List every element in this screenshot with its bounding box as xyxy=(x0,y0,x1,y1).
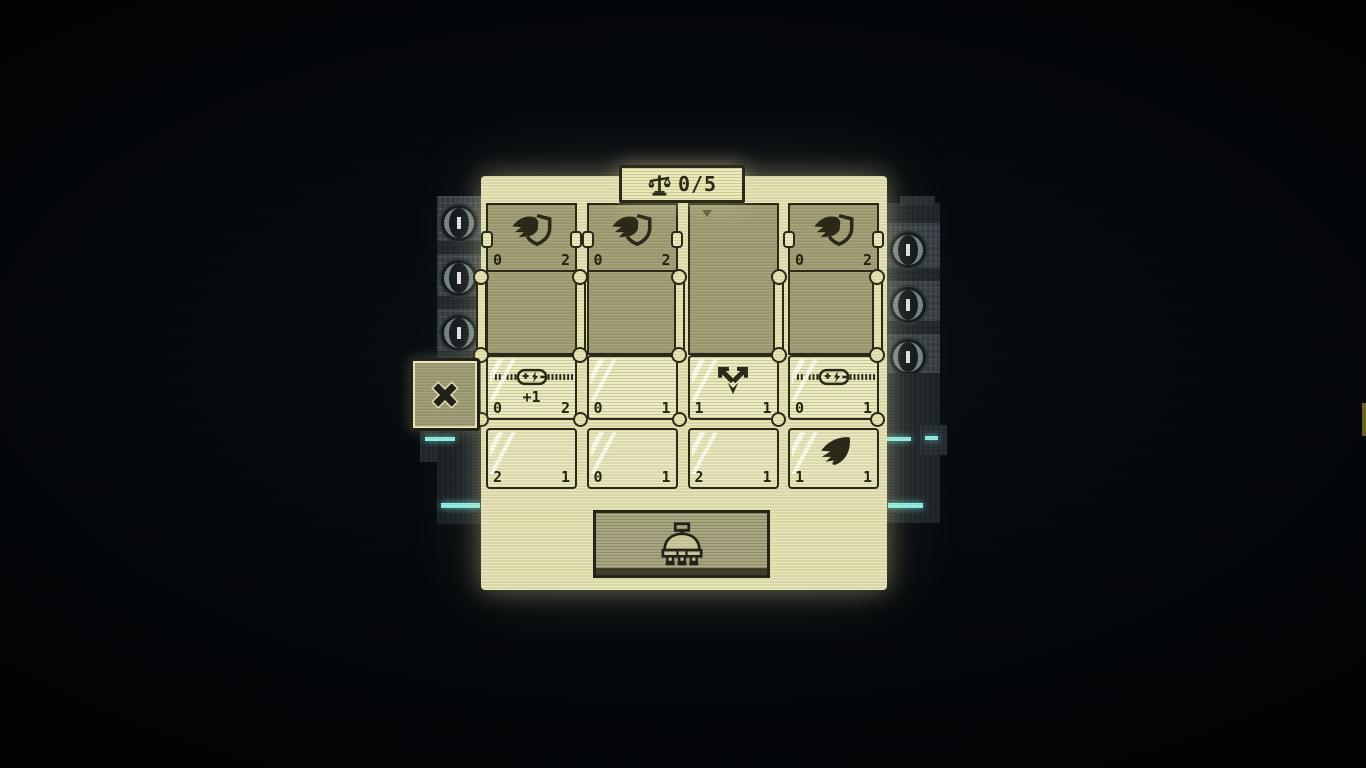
machine-block xyxy=(900,196,935,206)
card-value-right: 2 xyxy=(561,401,570,416)
connector-tab xyxy=(582,231,594,248)
card-value-right: 1 xyxy=(661,470,670,485)
card-column-4: 0 2 0 1 1 1 xyxy=(788,176,879,590)
connector-knob xyxy=(573,412,588,427)
connector-tab xyxy=(570,231,582,248)
card-value-left: 2 xyxy=(695,470,704,485)
connector-tab xyxy=(671,231,683,248)
card-socket: 0 2 xyxy=(788,203,879,355)
machine-block xyxy=(920,425,947,455)
robot-dome-icon xyxy=(656,522,708,567)
machine-column-right xyxy=(887,203,940,373)
screen-edge-glint xyxy=(1362,403,1366,436)
x-icon xyxy=(426,376,464,414)
divider-bone xyxy=(674,275,685,357)
connector-knob xyxy=(672,412,687,427)
machine-band xyxy=(887,321,940,334)
card-value-left: 1 xyxy=(695,401,704,416)
card-value-left: 1 xyxy=(795,470,804,485)
divider-bone xyxy=(872,275,883,357)
card-value-right: 1 xyxy=(863,401,872,416)
top-card[interactable]: 0 2 xyxy=(587,203,678,272)
glow-light xyxy=(888,503,923,508)
close-button[interactable] xyxy=(410,358,480,431)
card-value-left: 2 xyxy=(493,470,502,485)
glow-light xyxy=(425,437,455,441)
bottom-card[interactable]: 1 1 xyxy=(788,428,879,489)
divider-bone xyxy=(773,275,784,357)
bottom-card[interactable]: 0 1 xyxy=(587,428,678,489)
top-card[interactable]: 0 2 xyxy=(486,203,577,272)
empty-slot-marker xyxy=(702,210,712,217)
card-value-right: 1 xyxy=(661,401,670,416)
power-slider-icon xyxy=(491,367,573,387)
card-socket: 0 2 xyxy=(486,203,577,355)
winged-shield-icon xyxy=(811,210,857,248)
card-value-left: 0 xyxy=(795,401,804,416)
mid-card[interactable]: 1 1 xyxy=(688,355,779,420)
card-value-right: 1 xyxy=(863,470,872,485)
connector-knob xyxy=(870,412,885,427)
card-value-right: 2 xyxy=(561,253,570,268)
split-arrows-icon xyxy=(714,364,752,397)
machine-band xyxy=(887,268,940,281)
vent-fan-icon xyxy=(441,260,477,296)
mid-card[interactable]: 0 1 xyxy=(788,355,879,420)
card-column-1: 0 2 +1 0 2 2 1 xyxy=(486,176,577,590)
vent-fan-icon xyxy=(441,205,477,241)
balance-counter-badge: 0/5 xyxy=(619,165,745,203)
mid-card[interactable]: 0 1 xyxy=(587,355,678,420)
scales-icon xyxy=(647,173,671,196)
card-value-left: 0 xyxy=(493,253,502,268)
card-value-left: 0 xyxy=(594,470,603,485)
counter-value: 0/5 xyxy=(678,172,717,196)
divider-bone xyxy=(476,275,487,357)
vent-fan-icon xyxy=(890,339,926,375)
vent-fan-icon xyxy=(890,287,926,323)
wing-icon xyxy=(814,435,854,469)
divider-bone xyxy=(575,275,586,357)
card-value-left: 0 xyxy=(795,253,804,268)
card-value-right: 1 xyxy=(762,470,771,485)
card-value-left: 0 xyxy=(594,253,603,268)
vent-fan-icon xyxy=(890,232,926,268)
power-slider-icon xyxy=(793,367,875,387)
bottom-card[interactable]: 2 1 xyxy=(688,428,779,489)
empty-card-socket[interactable] xyxy=(688,203,779,355)
winged-shield-icon xyxy=(609,210,655,248)
card-socket: 0 2 xyxy=(587,203,678,355)
winged-shield-icon xyxy=(509,210,555,248)
card-value-left: 0 xyxy=(594,401,603,416)
connector-knob xyxy=(771,412,786,427)
glow-light xyxy=(441,503,480,508)
upgrade-panel: 0 2 +1 0 2 2 1 0 2 xyxy=(481,176,887,590)
bottom-card[interactable]: 2 1 xyxy=(486,428,577,489)
glow-light xyxy=(925,436,938,440)
top-card[interactable]: 0 2 xyxy=(788,203,879,272)
mid-card[interactable]: +1 0 2 xyxy=(486,355,577,420)
machine-band xyxy=(887,203,940,223)
card-value-right: 2 xyxy=(863,253,872,268)
vent-fan-icon xyxy=(441,315,477,351)
connector-tab xyxy=(872,231,884,248)
robot-dock[interactable] xyxy=(593,510,770,578)
connector-tab xyxy=(783,231,795,248)
card-value-left: 0 xyxy=(493,401,502,416)
machine-band xyxy=(437,241,482,254)
card-value-right: 2 xyxy=(661,253,670,268)
connector-tab xyxy=(481,231,493,248)
glow-light xyxy=(886,437,911,441)
card-value-right: 1 xyxy=(561,470,570,485)
card-value-right: 1 xyxy=(762,401,771,416)
